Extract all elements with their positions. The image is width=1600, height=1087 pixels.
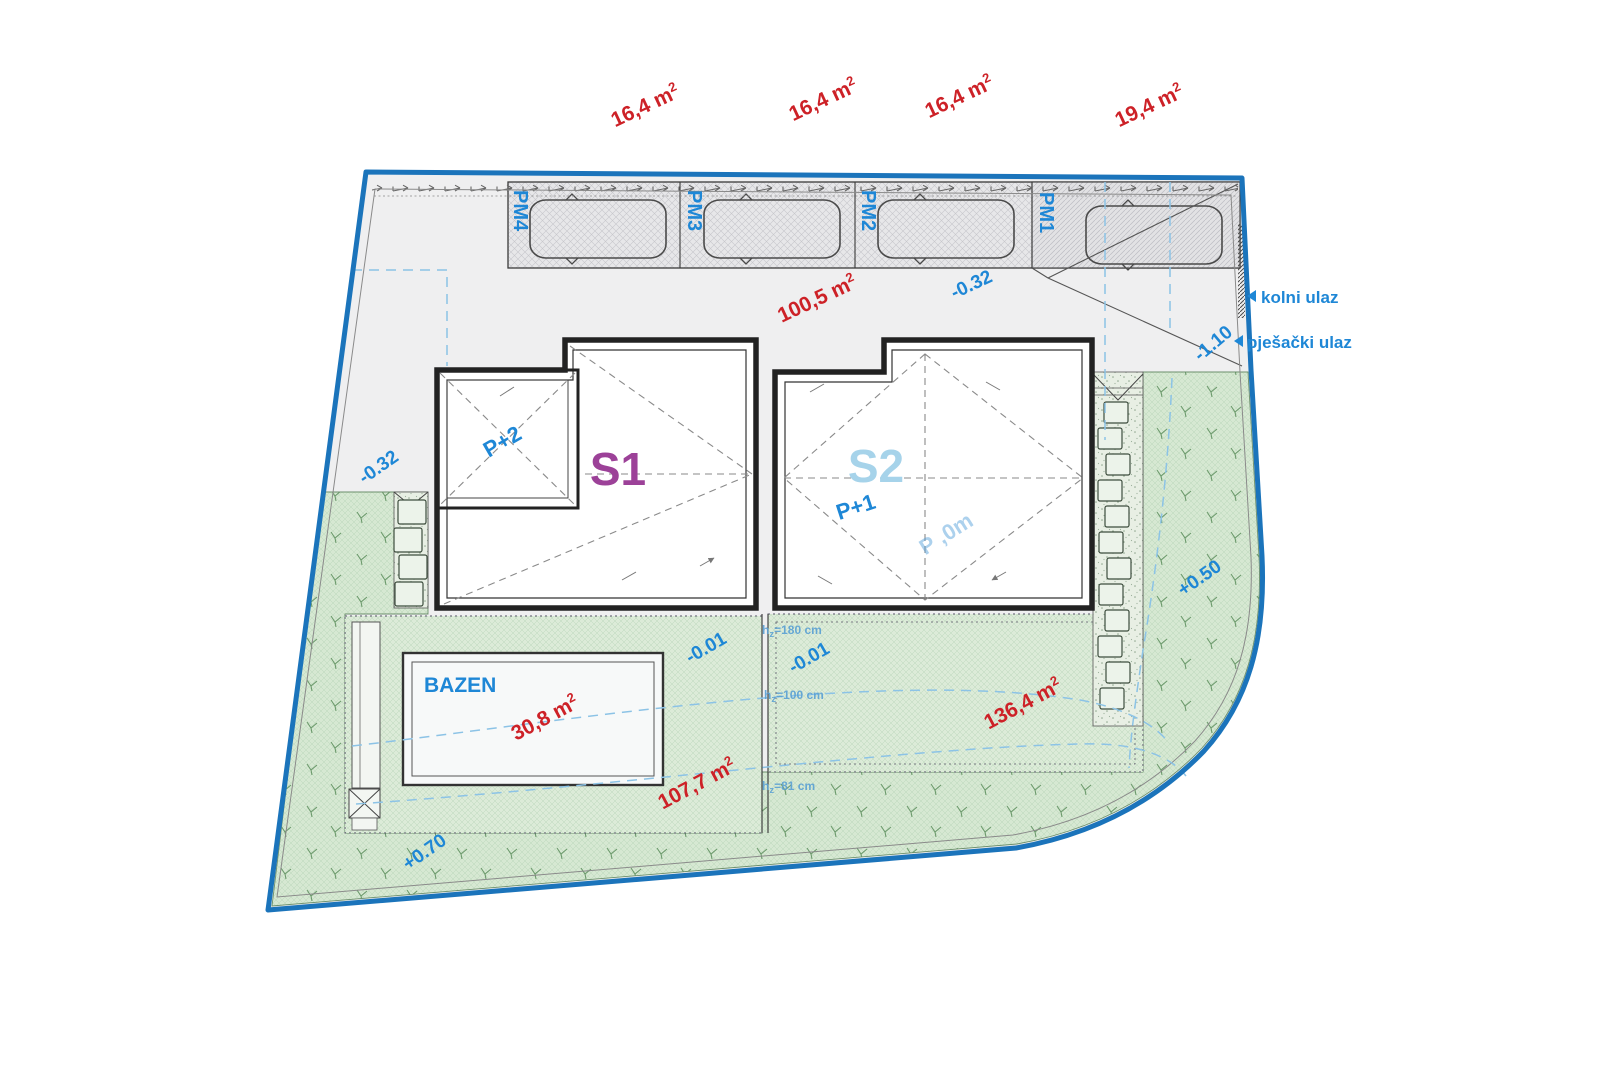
entrance-labels: kolni ulaz pješački ulaz xyxy=(1234,288,1352,352)
stepping-path-right xyxy=(1093,372,1143,726)
building-s2 xyxy=(775,340,1092,608)
pm3-area-label: 16,4 m2 xyxy=(785,73,861,126)
site-plan-drawing: 16,4 m2 16,4 m2 16,4 m2 19,4 m2 100,5 m2… xyxy=(0,0,1600,1087)
boundary-tick-arrows xyxy=(372,179,1238,193)
pm1-area-label: 19,4 m2 xyxy=(1111,79,1187,132)
stall-id-pm3: PM3 xyxy=(683,190,705,231)
stall-id-pm1: PM1 xyxy=(1035,192,1057,233)
building-s1-id: S1 xyxy=(590,443,646,495)
stall-id-pm2: PM2 xyxy=(857,190,879,231)
stall-id-pm4: PM4 xyxy=(509,190,531,232)
site-plan-page: 16,4 m2 16,4 m2 16,4 m2 19,4 m2 100,5 m2… xyxy=(0,0,1600,1087)
rear-garden-area xyxy=(768,614,1143,772)
pedestrian-entrance-label: pješački ulaz xyxy=(1247,333,1352,352)
pool-deck xyxy=(349,622,380,830)
building-s2-id: S2 xyxy=(848,440,904,492)
pm2-area-label: 16,4 m2 xyxy=(921,70,997,123)
vehicle-entrance-label: kolni ulaz xyxy=(1261,288,1338,307)
pool-name-label: BAZEN xyxy=(424,674,496,697)
pm4-area-label: 16,4 m2 xyxy=(607,79,683,132)
stepping-path-left xyxy=(394,492,428,608)
